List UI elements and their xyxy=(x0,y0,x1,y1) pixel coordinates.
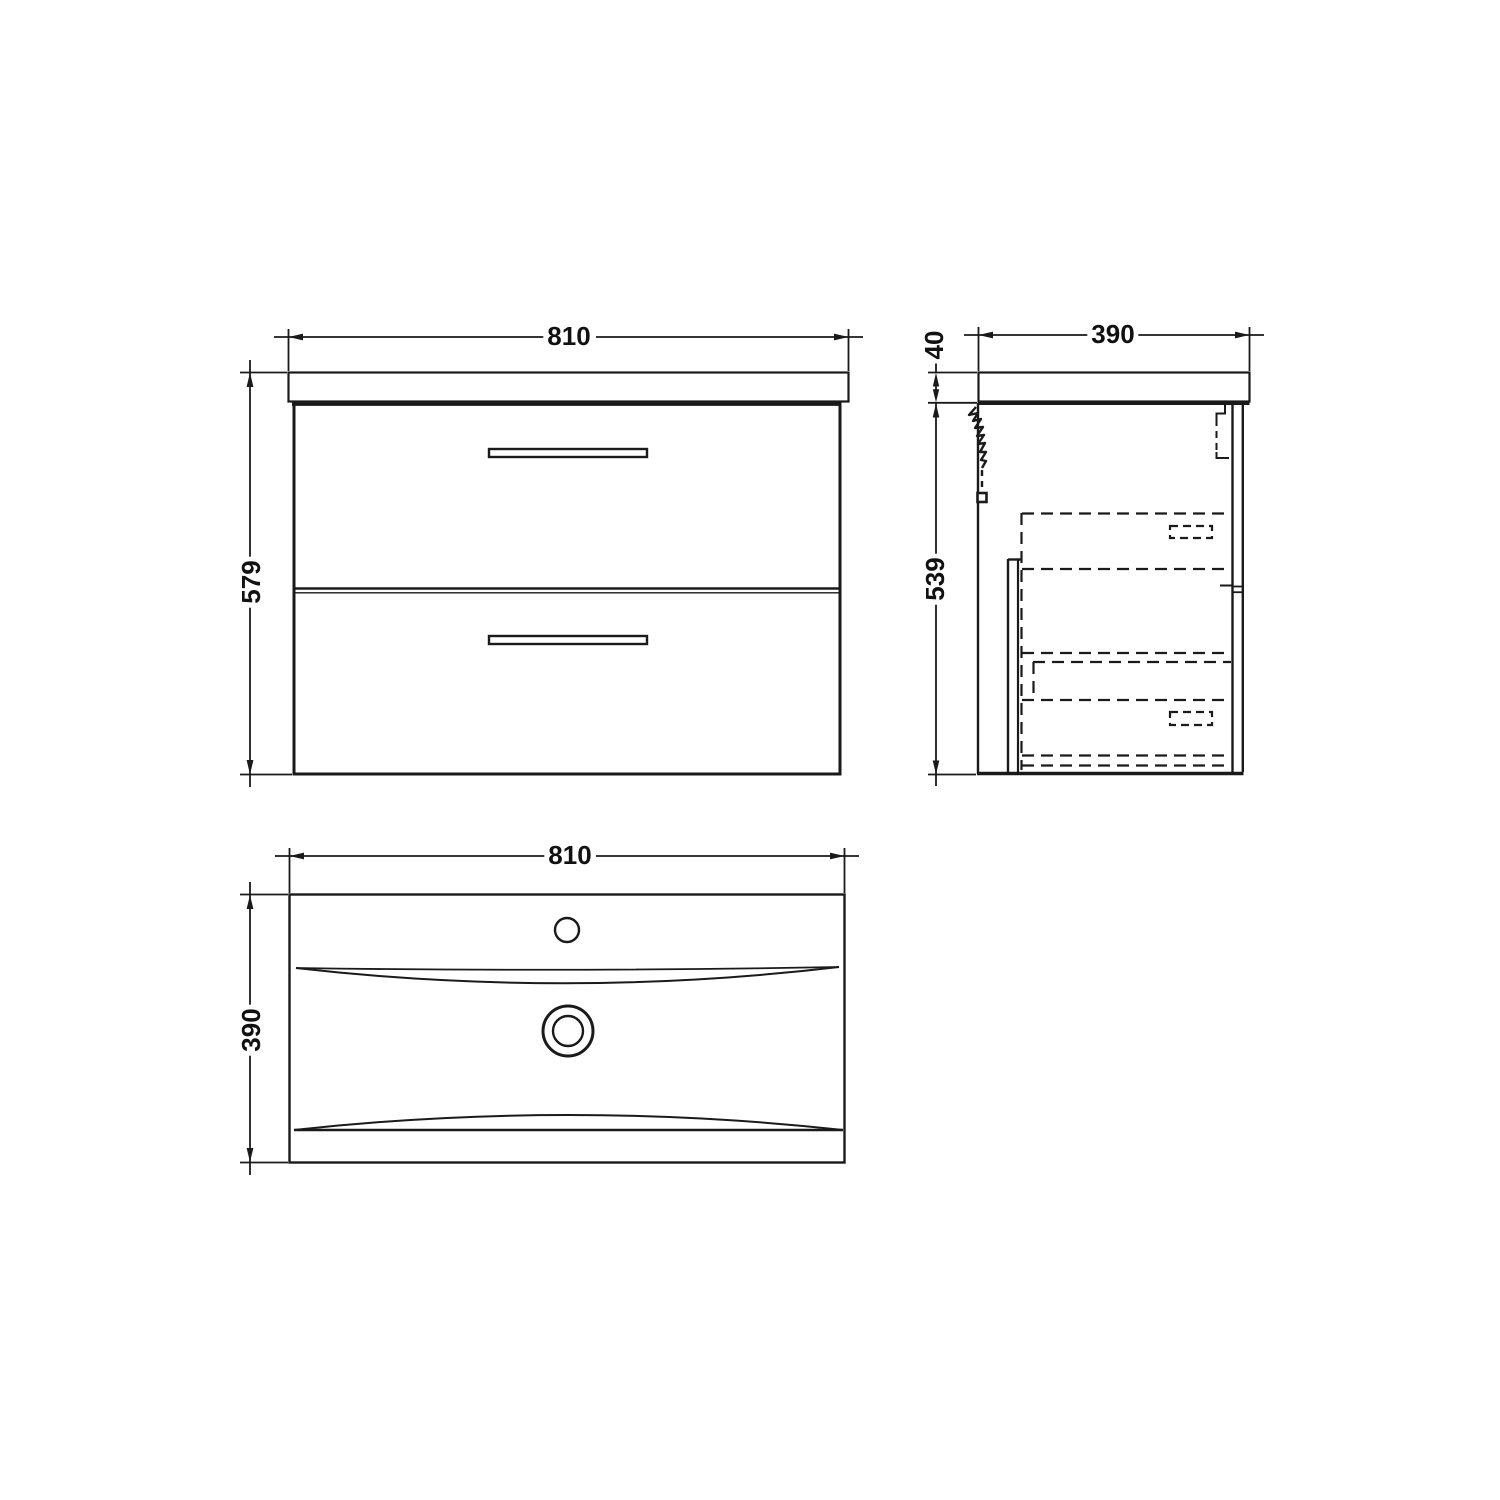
side-depth-dimension-label: 390 xyxy=(1087,321,1138,347)
side-drawer2-handle-hidden xyxy=(1170,712,1212,725)
front-view-drawing xyxy=(289,373,849,775)
front-width-dimension-label: 810 xyxy=(543,323,594,349)
side-back-strip xyxy=(1008,559,1021,772)
vanity-unit-drawing xyxy=(0,0,1500,1500)
plan-view-drawing xyxy=(290,895,845,1163)
front-countertop xyxy=(289,373,849,402)
side-view-drawing xyxy=(969,373,1250,775)
side-worktop-thickness-dimension-label: 40 xyxy=(921,327,947,364)
side-internal-drawers-dashed xyxy=(1022,513,1232,770)
side-drawer1-handle-hidden xyxy=(1170,526,1212,538)
plan-front-edge-curve xyxy=(294,1115,843,1130)
side-fixing-notch xyxy=(1217,403,1226,419)
plan-waste-outer xyxy=(543,1006,593,1056)
plan-tap-hole xyxy=(555,918,579,942)
plan-depth-dimension-label: 390 xyxy=(238,1004,264,1055)
technical-drawing-canvas: 810 579 390 40 539 810 390 xyxy=(0,0,1500,1500)
front-drawer2-handle xyxy=(489,636,647,644)
side-countertop xyxy=(979,373,1250,402)
front-view-dimensions xyxy=(240,329,863,787)
side-bracket-foot xyxy=(978,493,987,502)
front-height-dimension-label: 579 xyxy=(238,556,264,607)
front-drawer1-handle xyxy=(489,449,647,457)
plan-waste-inner xyxy=(553,1016,583,1046)
plan-back-edge-line xyxy=(296,967,839,970)
plan-width-dimension-label: 810 xyxy=(544,842,595,868)
side-cabinet-height-dimension-label: 539 xyxy=(922,553,948,604)
